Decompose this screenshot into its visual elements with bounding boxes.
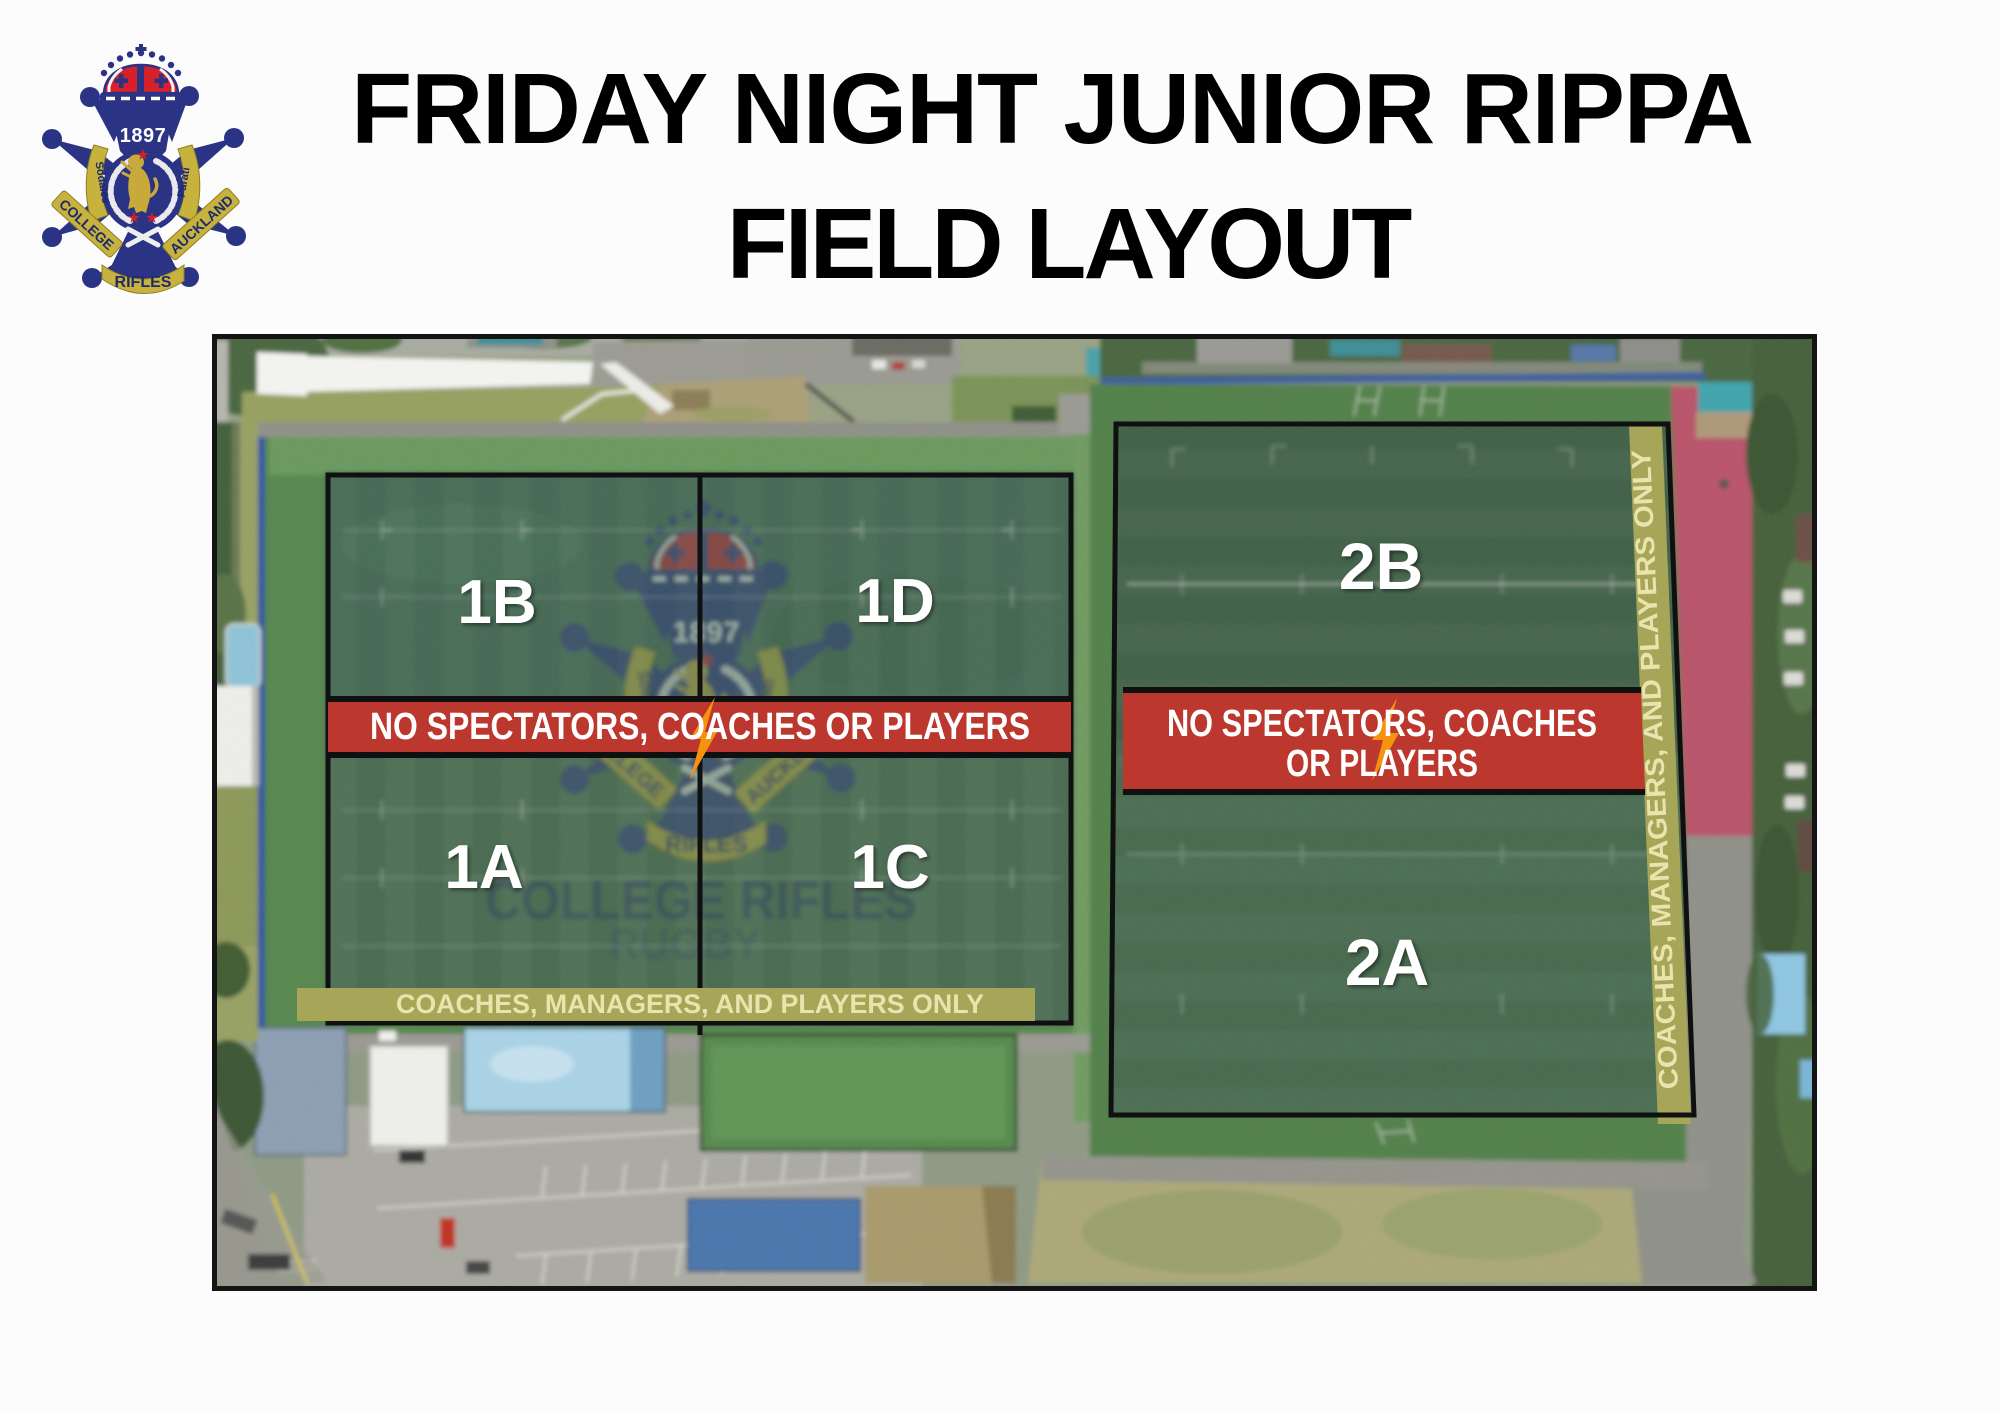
svg-text:1D: 1D [855, 567, 934, 636]
svg-text:COACHES, MANAGERS, AND PLAYERS: COACHES, MANAGERS, AND PLAYERS ONLY [396, 989, 984, 1019]
svg-text:1B: 1B [457, 568, 536, 637]
svg-text:1A: 1A [444, 833, 523, 902]
svg-text:2A: 2A [1345, 925, 1429, 999]
svg-text:1C: 1C [850, 833, 929, 902]
svg-text:NO SPECTATORS, COACHES: NO SPECTATORS, COACHES [1167, 703, 1597, 745]
svg-text:NO SPECTATORS, COACHES OR PLAY: NO SPECTATORS, COACHES OR PLAYERS [370, 706, 1030, 748]
svg-text:2B: 2B [1339, 529, 1423, 603]
svg-text:OR PLAYERS: OR PLAYERS [1286, 743, 1478, 785]
